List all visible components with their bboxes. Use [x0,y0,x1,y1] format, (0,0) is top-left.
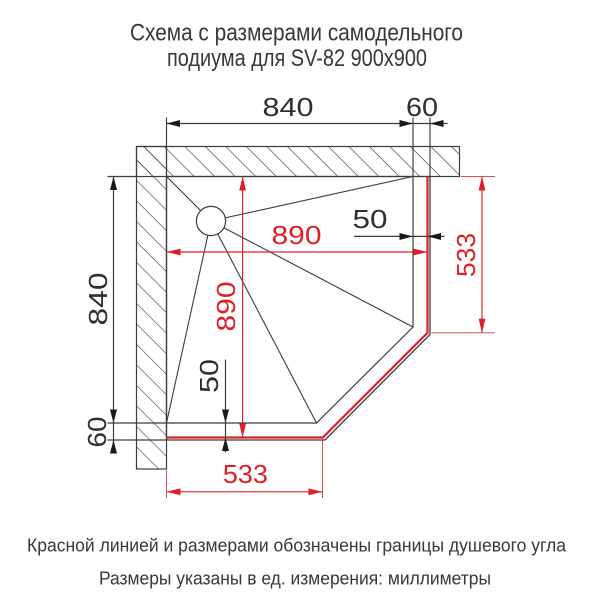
svg-text:50: 50 [353,204,388,234]
svg-text:Размеры указаны в ед. измерени: Размеры указаны в ед. измерения: миллиме… [99,569,491,589]
svg-text:50: 50 [194,359,224,393]
svg-text:533: 533 [451,233,481,277]
svg-text:Схема с размерами самодельного: Схема с размерами самодельного [130,20,463,47]
svg-text:подиума для SV-82 900x900: подиума для SV-82 900x900 [167,45,427,72]
svg-text:60: 60 [406,92,438,122]
svg-text:Красной линией и размерами обо: Красной линией и размерами обозначены гр… [27,536,567,556]
svg-text:840: 840 [83,273,113,326]
svg-text:890: 890 [211,282,241,332]
svg-text:533: 533 [223,459,268,489]
svg-text:890: 890 [272,220,322,250]
svg-text:840: 840 [263,92,314,122]
svg-text:60: 60 [82,417,112,448]
